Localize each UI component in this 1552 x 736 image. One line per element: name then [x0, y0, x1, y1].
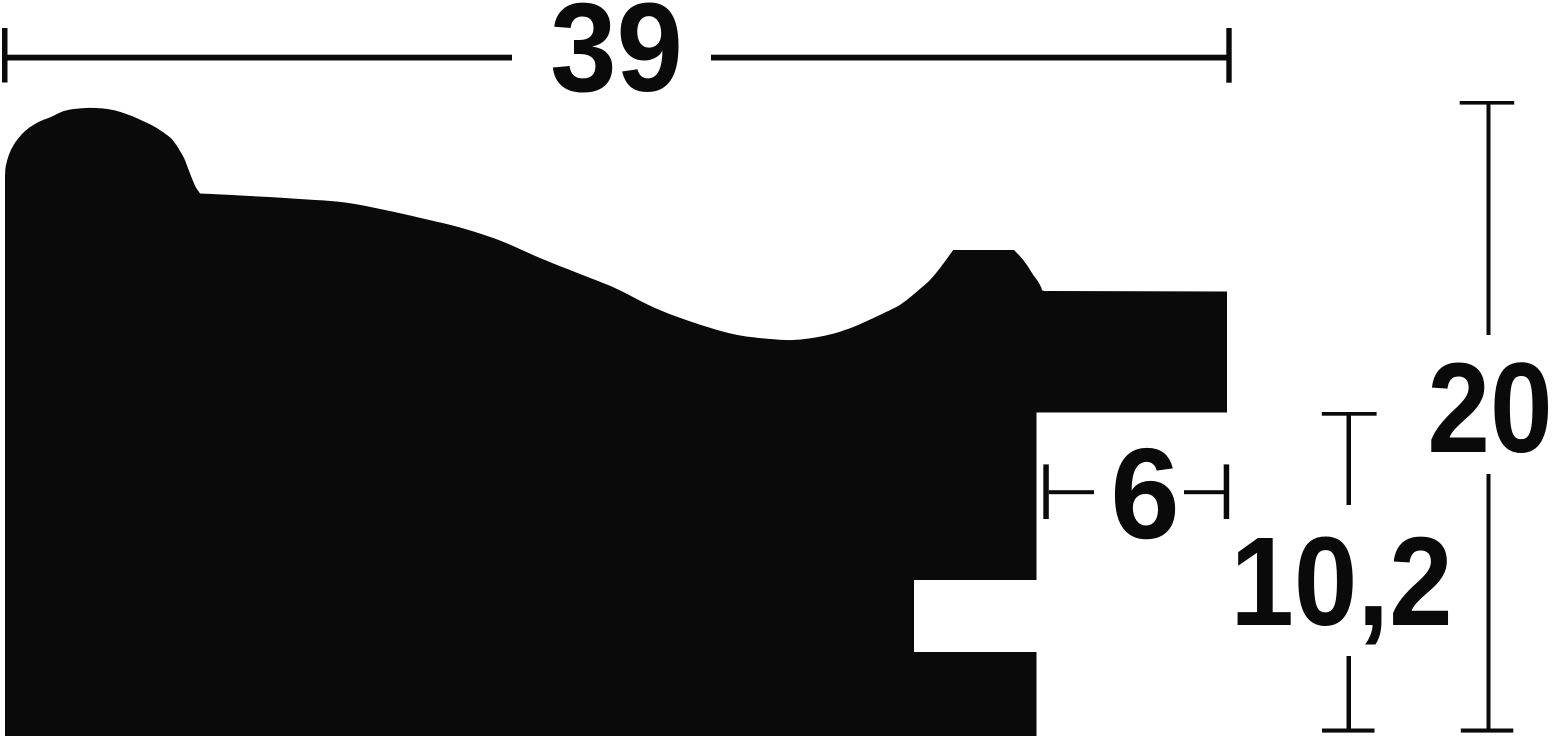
svg-text:6: 6: [1110, 421, 1179, 566]
svg-text:20: 20: [1427, 336, 1552, 479]
svg-text:10,2: 10,2: [1230, 511, 1452, 653]
svg-text:39: 39: [550, 0, 683, 119]
